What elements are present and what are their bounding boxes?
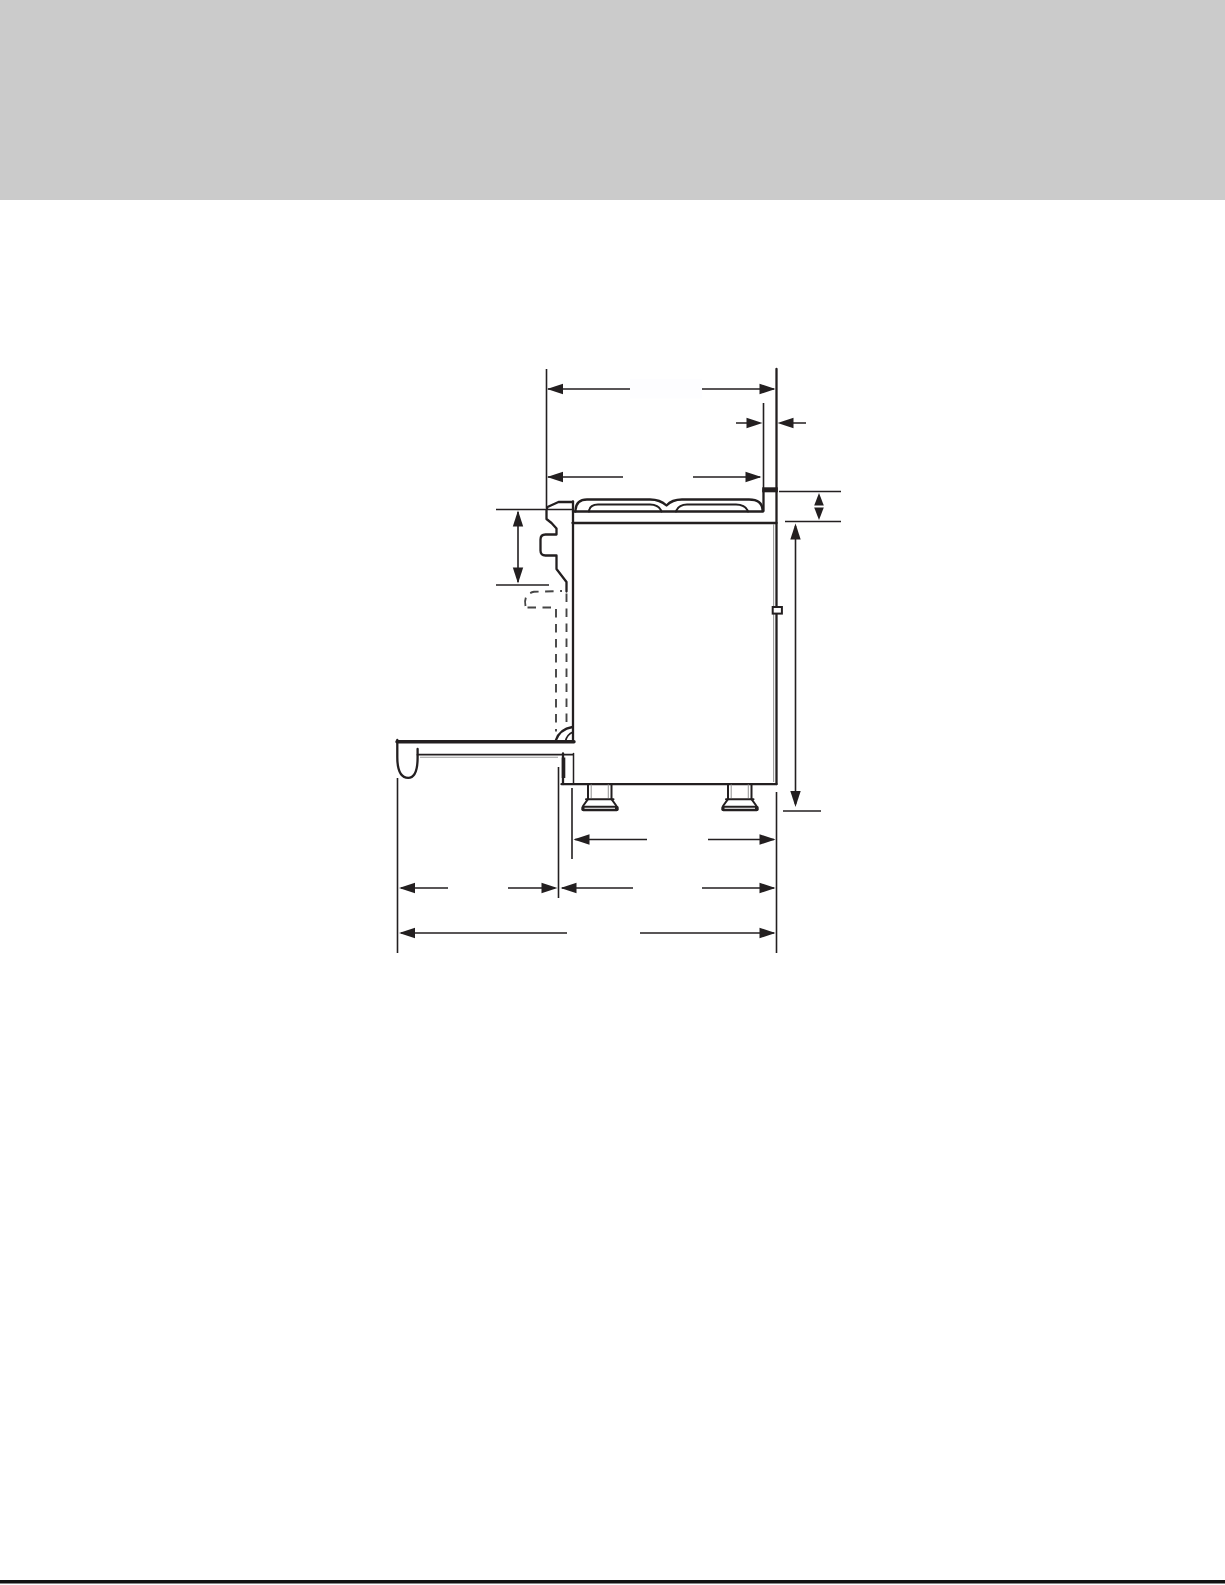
leveling-foot-right [723,785,757,807]
control-panel-profile [541,502,574,592]
header-band [0,0,1225,200]
arrowhead [814,508,824,521]
arrowhead [399,883,415,893]
arrowhead [547,384,563,394]
arrowhead [760,928,776,938]
shadow-lines [420,524,774,798]
blank-dimension-label-box [630,379,702,399]
door-hinge-arm [562,758,566,779]
arrowhead [790,791,800,807]
arrowhead [747,418,763,428]
door-handle [397,740,417,778]
arrowhead [778,418,794,428]
arrowhead [790,524,800,540]
arrowhead [760,883,776,893]
arrowhead [746,472,762,482]
dashed-handle-top [525,591,562,606]
foot-stem [726,785,754,800]
foot-flare [723,799,757,806]
arrowhead [574,834,590,844]
leveling-foot-left [583,785,617,807]
arrowhead [561,883,577,893]
gas-inlet-tab [773,607,782,614]
arrowhead [399,928,415,938]
arrowhead [513,511,523,527]
arrowhead [547,472,563,482]
foot-stem [586,785,614,800]
footer-rule [0,1580,1225,1584]
door-closed-dashed-outline [525,591,566,732]
arrowhead [760,384,776,394]
arrowhead [760,834,776,844]
arrowhead [814,493,824,506]
backguard-top-cap [762,487,778,492]
foot-inner-lines [591,785,748,799]
range-outline [397,369,777,806]
filled-details [562,487,778,811]
range-side-view-drawing [397,369,841,953]
arrowhead [513,568,523,584]
dimension-arrowheads [399,384,824,938]
extension-lines [398,369,842,953]
arrowhead [542,883,558,893]
foot-flare [583,799,617,806]
dimension-lines [401,389,806,933]
document-page [0,0,1225,1585]
